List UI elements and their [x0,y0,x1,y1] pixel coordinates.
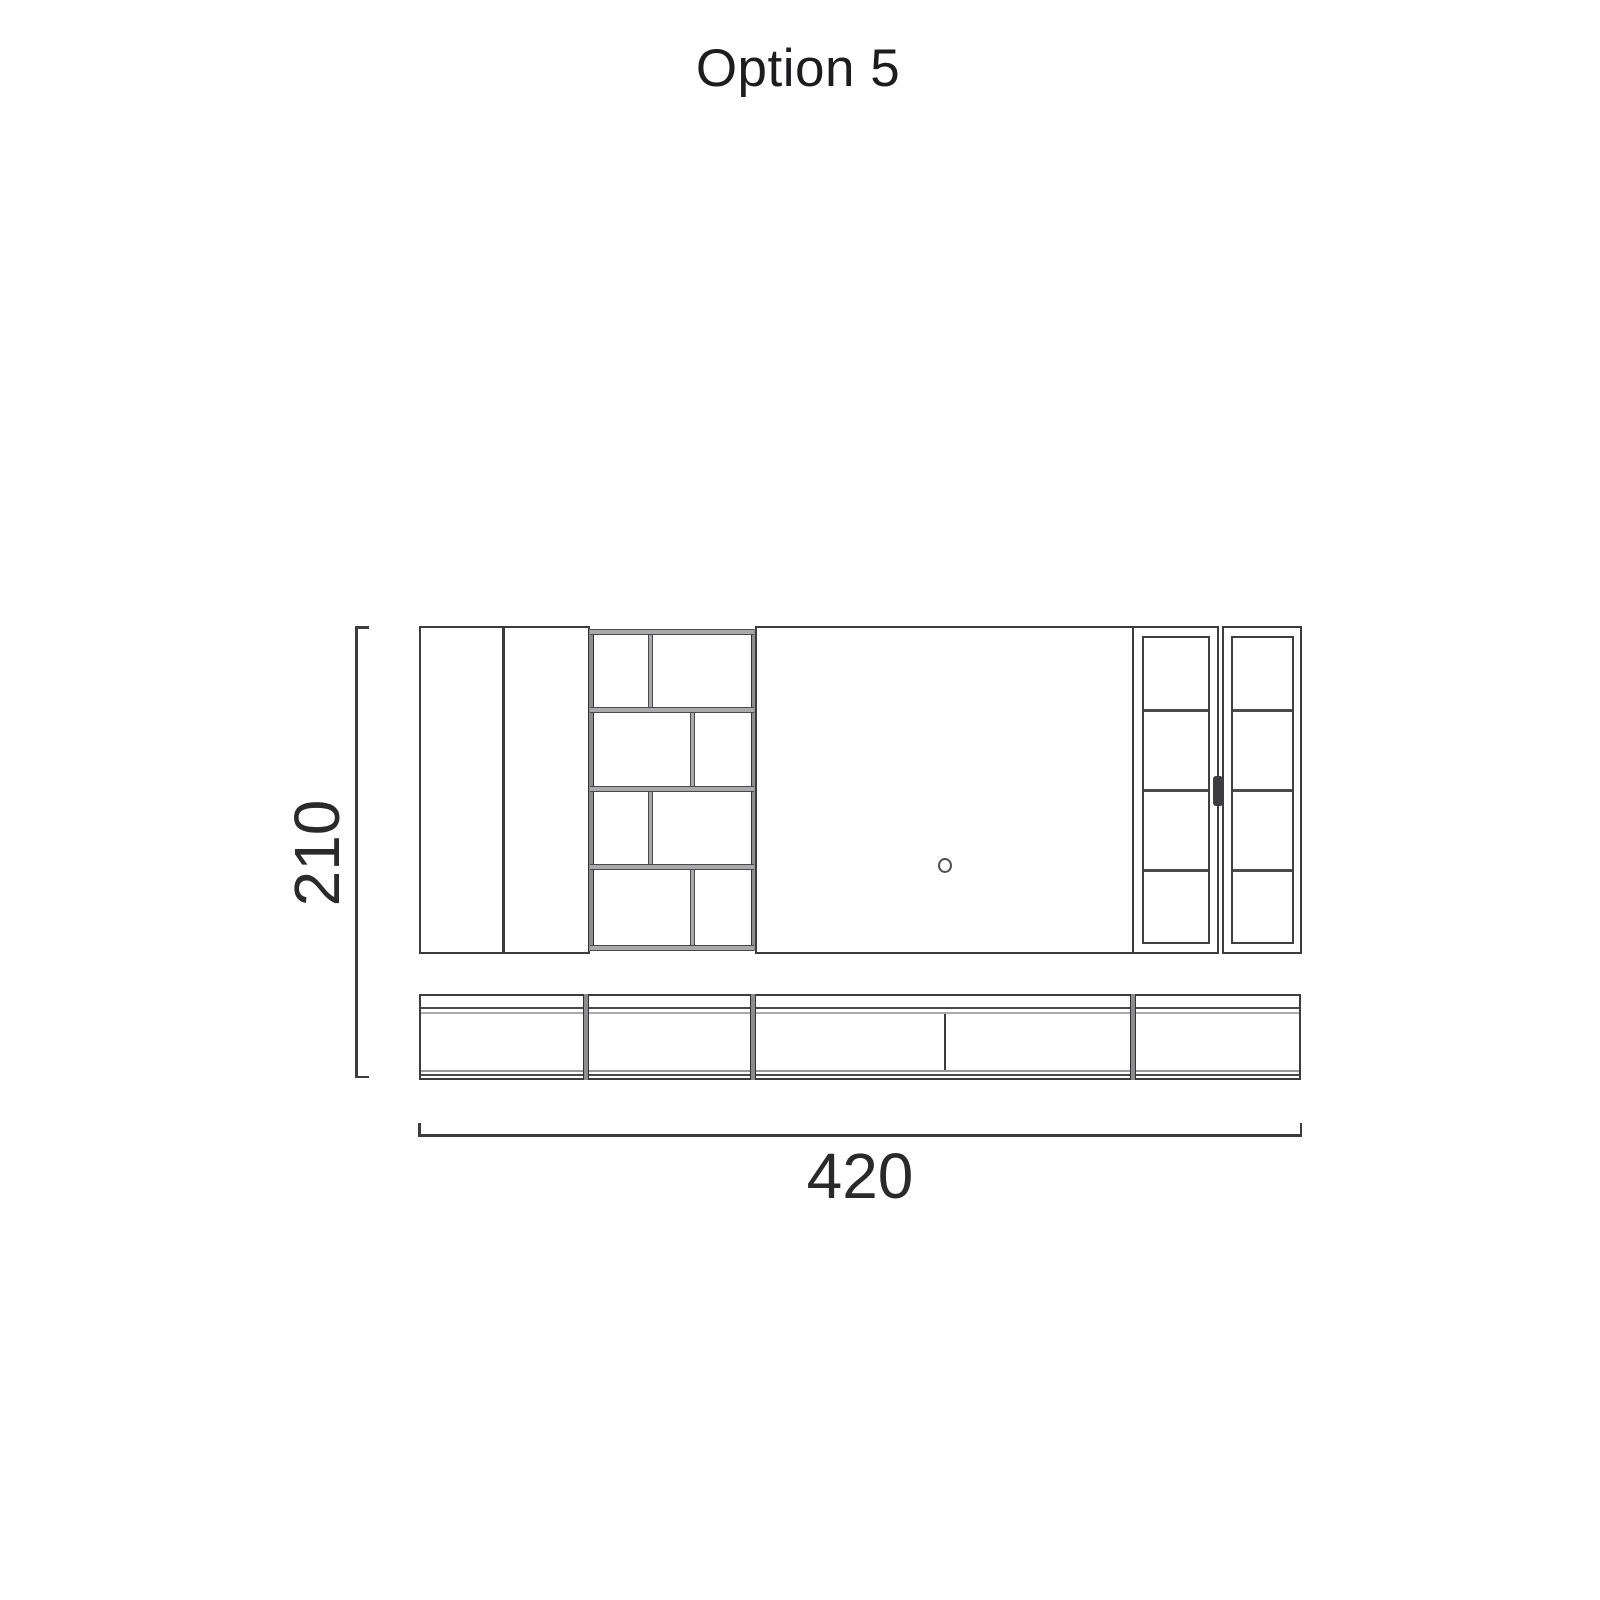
shelf-top [590,629,754,635]
shelf-divider-row1 [648,635,653,707]
glass-cabinet-right-shelf-2 [1233,789,1292,792]
shelf-3 [590,864,754,870]
bench-thin-divider [944,1014,946,1070]
tv-panel [755,626,1135,954]
glass-cabinet-right-shelf-3 [1233,869,1292,872]
bench-top-shadow-line [421,1012,1299,1014]
bench-bottom-shadow-line [421,1070,1299,1072]
shelf-2 [590,786,754,792]
tall-cabinet-frame [419,626,590,954]
height-dimension-label: 210 [280,800,354,907]
bench-top-inner-line [421,1007,1299,1009]
door-handle-icon [1213,776,1223,806]
height-dimension-line [355,626,358,1078]
bench-divider-3 [1130,994,1136,1080]
drawing-canvas: Option 5 210 420 [0,0,1600,1600]
glass-cabinet-left-shelf-3 [1144,869,1208,872]
shelf-1 [590,707,754,713]
glass-cabinet-left-shelf-2 [1144,789,1208,792]
bench-bottom-inner-line [421,1074,1299,1076]
height-dimension-cap-bottom [355,1076,369,1079]
height-dimension-cap-top [355,626,369,629]
shelf-divider-row4 [690,870,695,945]
width-dimension-cap-right [1300,1123,1303,1136]
shelf-bottom [590,945,754,951]
cable-hole-icon [938,858,952,873]
glass-cabinet-left-shelf-1 [1144,709,1208,712]
width-dimension-label: 420 [807,1139,914,1213]
bench-divider-1 [583,994,589,1080]
bench-divider-2 [750,994,756,1080]
tall-cabinet-door-divider [502,627,505,953]
shelf-divider-row3 [648,792,653,864]
glass-cabinet-right-shelf-1 [1233,709,1292,712]
shelf-divider-row2 [690,713,695,786]
page-title: Option 5 [0,38,1596,99]
width-dimension-cap-left [418,1123,421,1136]
width-dimension-line [418,1134,1302,1137]
